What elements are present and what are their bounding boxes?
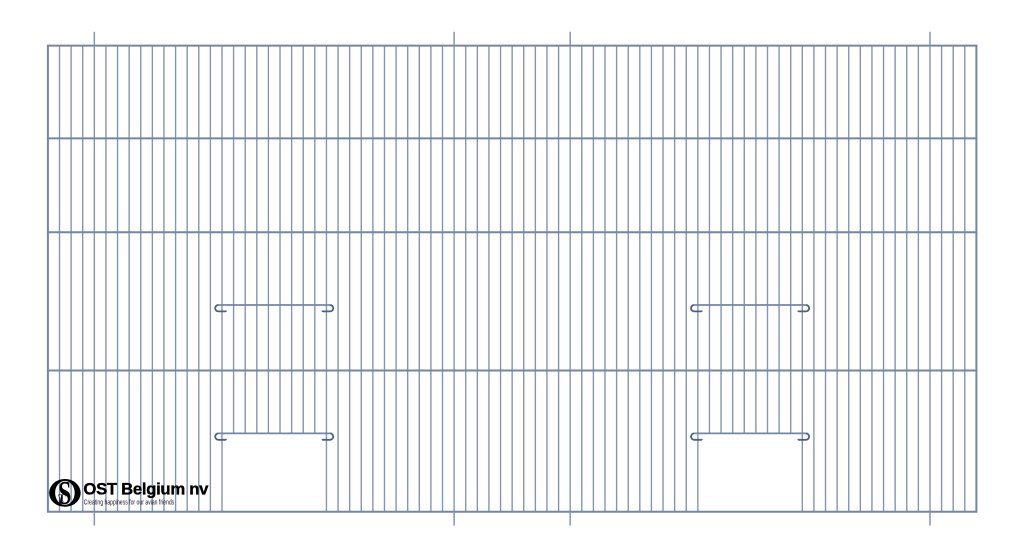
svg-text:OST Belgium nv: OST Belgium nv [83,479,209,498]
svg-text:T: T [58,493,66,505]
svg-text:Creating happiness for our avi: Creating happiness for our avian friends [84,499,174,507]
